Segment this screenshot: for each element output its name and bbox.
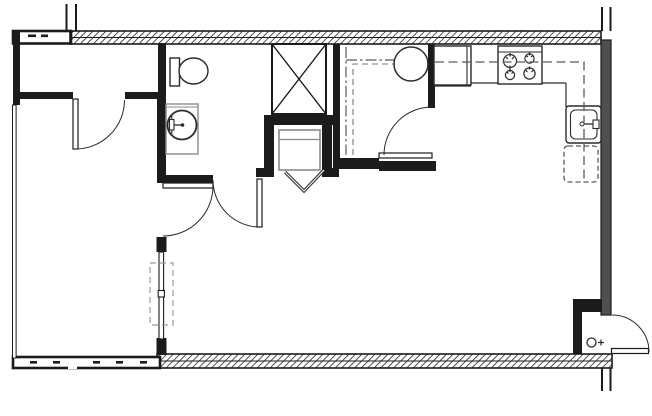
exterior-wall-top-hatched (70, 31, 601, 44)
exterior-wall-bottom-hatched (157, 354, 612, 368)
refrigerator-icon (434, 46, 471, 85)
exterior-wall-left (13, 31, 21, 358)
range-stove-icon (498, 46, 542, 84)
bifold-door-icon (285, 170, 324, 191)
dishwasher-dashed-icon (564, 146, 598, 182)
floor-plan-page (0, 0, 652, 416)
bathroom-round-sink (168, 111, 197, 140)
floor-plan-drawing (0, 0, 652, 416)
faucet-icon (170, 120, 175, 131)
water-heater-icon (394, 47, 428, 81)
grid-line-top-right (602, 7, 611, 31)
entry-door (612, 315, 650, 354)
faucet-icon (593, 120, 599, 129)
bathroom-door (213, 179, 262, 227)
alcove-appliance (279, 130, 320, 170)
bathroom-south-wall (158, 175, 213, 183)
closet-door (73, 99, 125, 149)
bedroom-door (163, 183, 213, 236)
bathroom-toilet (170, 58, 208, 86)
grid-line-top-left (67, 4, 77, 31)
grid-line-bottom-right (602, 368, 611, 391)
exterior-wall-top-plain (13, 31, 71, 44)
living-west-wall-upper (157, 98, 165, 183)
slider-window-panel (150, 237, 173, 355)
closet-south-wall (13, 92, 162, 99)
exterior-wall-bottom-left-plain (13, 357, 160, 369)
entry-alcove-walls (573, 299, 602, 354)
entry-door-symbol (587, 338, 604, 347)
utility-closet-door (379, 107, 432, 158)
x-box-chase (272, 44, 326, 114)
demising-wall-right-gray (601, 40, 611, 315)
kitchen-counter-edges (434, 83, 566, 107)
